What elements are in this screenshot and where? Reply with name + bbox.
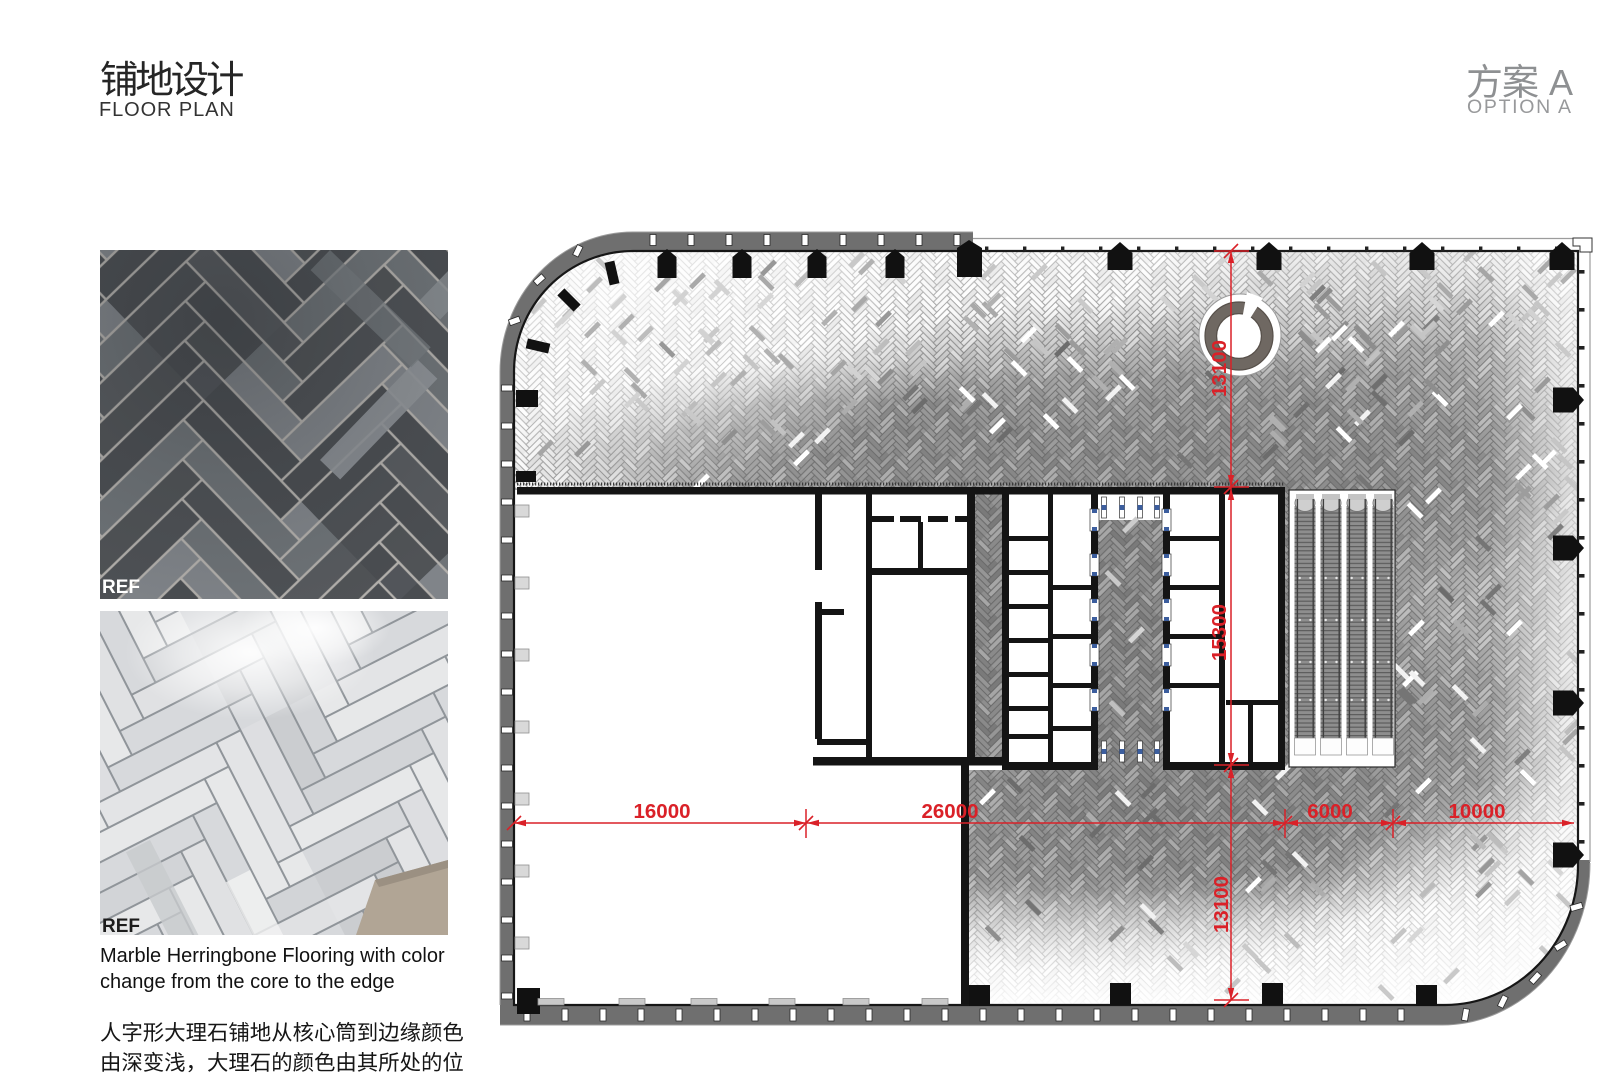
svg-text:13100: 13100 [1210,876,1233,933]
svg-text:26000: 26000 [921,800,978,823]
svg-text:REF: REF [102,577,140,598]
svg-text:REF: REF [102,916,140,937]
svg-text:OPTION A: OPTION A [1467,96,1573,118]
svg-text:13100: 13100 [1208,340,1231,397]
svg-text:change from the core to the ed: change from the core to the edge [100,971,395,993]
svg-text:Marble Herringbone Flooring wi: Marble Herringbone Flooring with color [100,945,445,967]
svg-text:10000: 10000 [1448,800,1505,823]
svg-text:15300: 15300 [1208,604,1231,661]
svg-text:16000: 16000 [633,800,690,823]
svg-text:FLOOR PLAN: FLOOR PLAN [99,99,235,121]
svg-text:6000: 6000 [1307,800,1353,823]
